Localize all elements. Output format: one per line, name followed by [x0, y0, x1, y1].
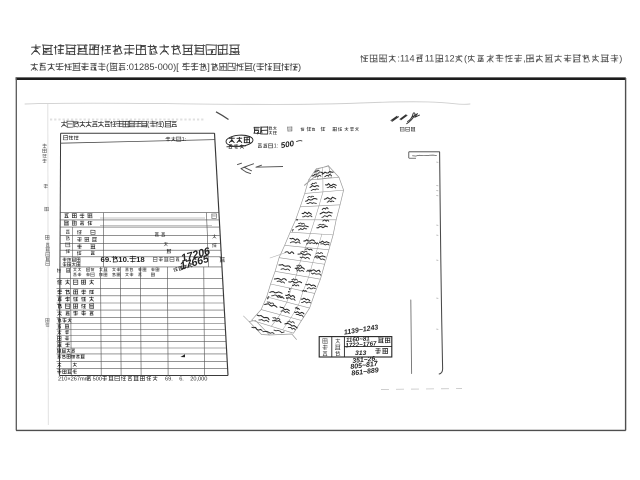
svg-text::01285-000)[: :01285-000)[	[126, 62, 179, 72]
svg-text:]: ]	[207, 62, 210, 72]
svg-text:6.: 6.	[179, 376, 184, 382]
svg-text:500: 500	[93, 376, 102, 382]
svg-text:): )	[619, 54, 622, 64]
svg-text:210×267mm: 210×267mm	[58, 376, 90, 382]
svg-text:1:: 1:	[274, 144, 278, 150]
svg-text:20,000: 20,000	[190, 376, 207, 382]
svg-text:69.: 69.	[165, 376, 173, 382]
svg-text:(: (	[464, 54, 467, 64]
svg-text:69.: 69.	[101, 255, 112, 264]
svg-text:10.: 10.	[118, 255, 129, 264]
svg-text:11: 11	[425, 54, 435, 64]
svg-text:18: 18	[136, 255, 145, 264]
svg-text:): )	[298, 62, 301, 72]
svg-text::114: :114	[397, 54, 414, 64]
svg-text:12: 12	[444, 54, 454, 64]
svg-text:,: ,	[523, 54, 526, 64]
svg-text:1:: 1:	[182, 137, 186, 143]
